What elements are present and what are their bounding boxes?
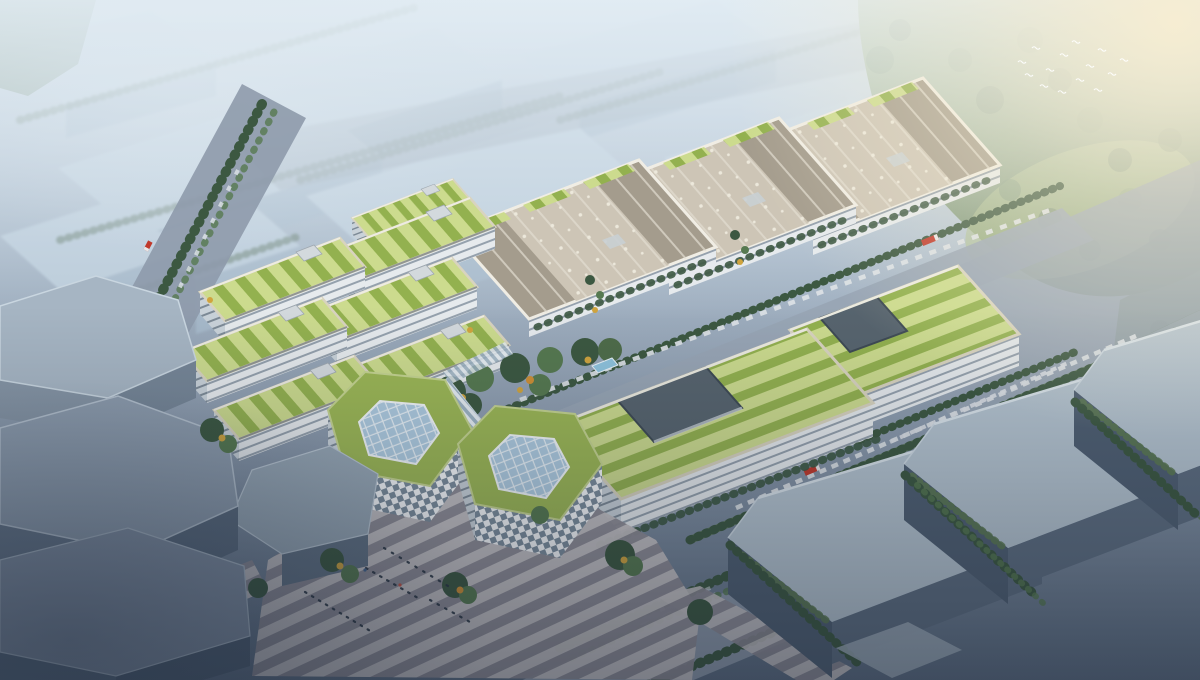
aerial-rendering-stage [0, 0, 1200, 680]
sun-glow [700, 0, 1200, 460]
industrial-park-rendering [0, 0, 1200, 680]
